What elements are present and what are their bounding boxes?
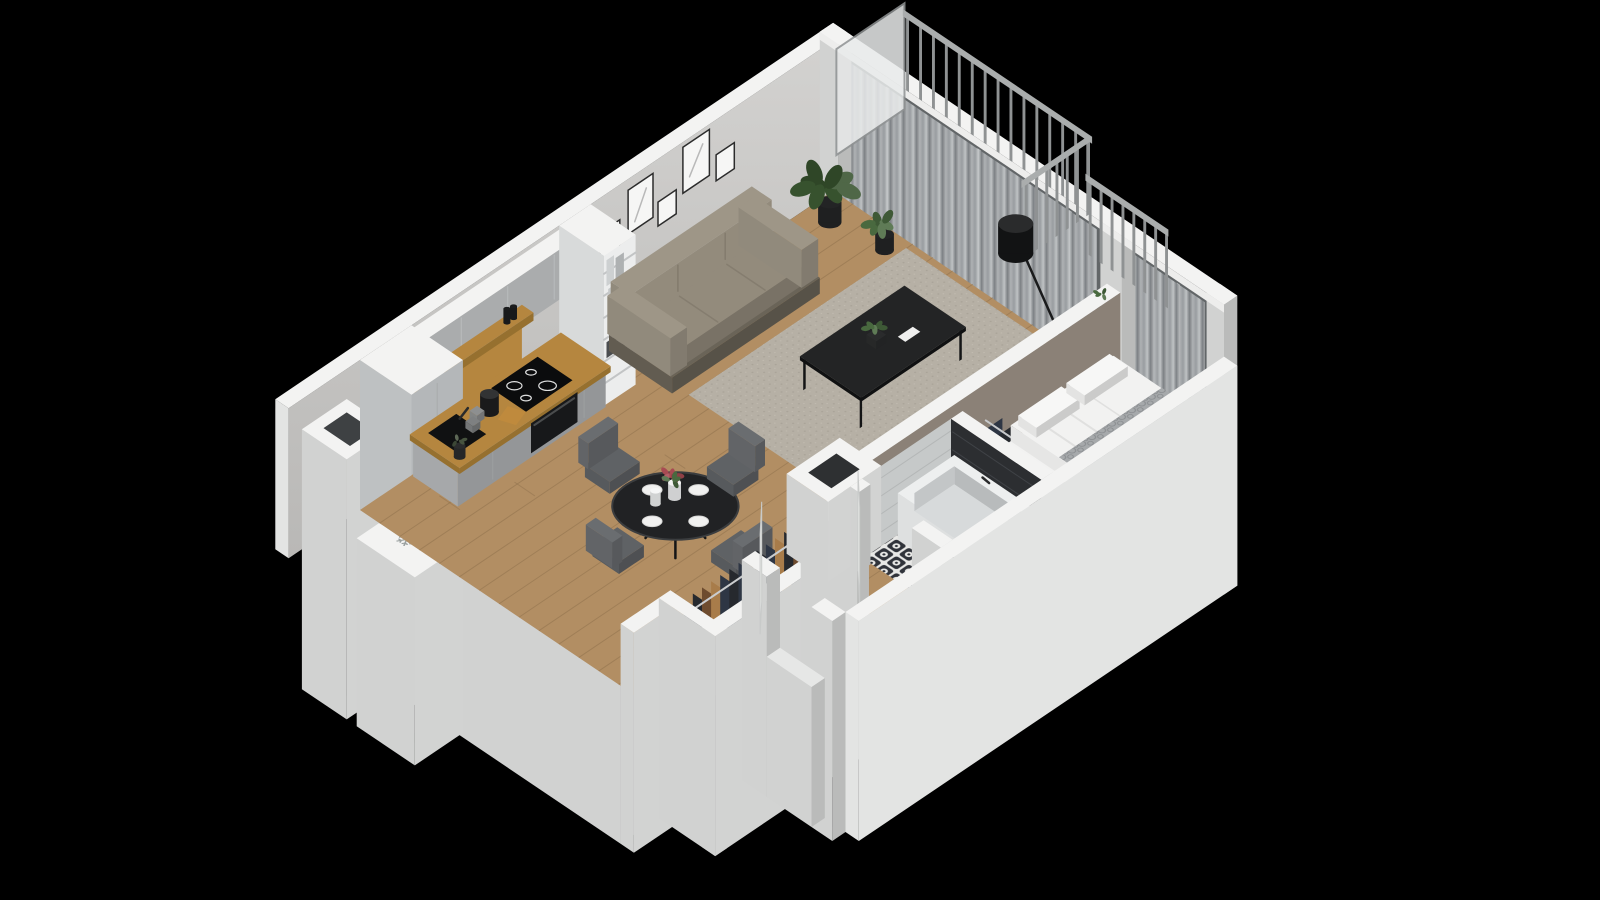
fridge-block bbox=[357, 538, 415, 765]
bathroom-door bbox=[858, 471, 860, 608]
french-balcony-posts bbox=[1111, 196, 1114, 272]
pepper-grinder bbox=[503, 307, 510, 311]
dinner-plate bbox=[689, 516, 709, 527]
kettle bbox=[480, 389, 499, 399]
balcony-railing-posts bbox=[932, 34, 935, 110]
french-balcony-posts bbox=[1122, 203, 1125, 279]
balcony-railing-posts bbox=[1048, 112, 1051, 188]
hallway-wall bbox=[742, 560, 767, 797]
balcony-railing-posts bbox=[997, 77, 1000, 153]
balcony-railing-posts bbox=[1035, 104, 1038, 180]
entry-threshold bbox=[812, 678, 825, 827]
entry-door bbox=[760, 502, 762, 635]
pepper-grinder bbox=[503, 309, 510, 323]
balcony-railing-posts bbox=[1010, 86, 1013, 162]
balcony-corner-posts bbox=[1066, 154, 1069, 230]
balcony-corner-posts bbox=[1045, 168, 1048, 244]
dinner-plate bbox=[642, 516, 662, 527]
balcony-corner-posts bbox=[1035, 175, 1038, 251]
balcony-railing-posts bbox=[984, 69, 987, 145]
balcony-railing-posts bbox=[945, 43, 948, 119]
water-carafe bbox=[650, 488, 661, 494]
balcony-railing-posts bbox=[906, 16, 909, 92]
balcony-railing-posts bbox=[958, 51, 961, 127]
floorplan-3d-render: ❄ bbox=[0, 0, 1600, 900]
french-balcony-posts bbox=[1154, 225, 1157, 301]
balcony-railing-posts bbox=[971, 60, 974, 136]
fridge-block bbox=[415, 545, 463, 766]
balcony-corner-posts bbox=[1076, 147, 1079, 223]
bathroom-wall bbox=[859, 484, 871, 572]
french-balcony-posts bbox=[1089, 181, 1092, 257]
balcony-railing-posts bbox=[919, 25, 922, 101]
se-wall bbox=[846, 612, 859, 841]
vent-shaft-block bbox=[302, 429, 347, 719]
french-balcony-posts bbox=[1100, 188, 1103, 264]
french-balcony-posts bbox=[1132, 210, 1135, 286]
dinner-plate bbox=[689, 485, 709, 496]
balcony-railing-posts bbox=[1023, 95, 1026, 171]
french-balcony-posts bbox=[1165, 232, 1168, 308]
closet-front-wall bbox=[702, 627, 715, 856]
coffee-table-leg bbox=[860, 397, 862, 429]
render-stage: ❄ bbox=[0, 0, 1600, 900]
hallway-wall bbox=[832, 612, 845, 841]
french-balcony-posts bbox=[1143, 218, 1146, 294]
nw-wall bbox=[275, 399, 288, 558]
pepper-grinder bbox=[510, 304, 517, 308]
sw-wall bbox=[621, 624, 634, 853]
balcony-corner-posts bbox=[1056, 161, 1059, 237]
floor-lamp-shade bbox=[998, 214, 1033, 233]
